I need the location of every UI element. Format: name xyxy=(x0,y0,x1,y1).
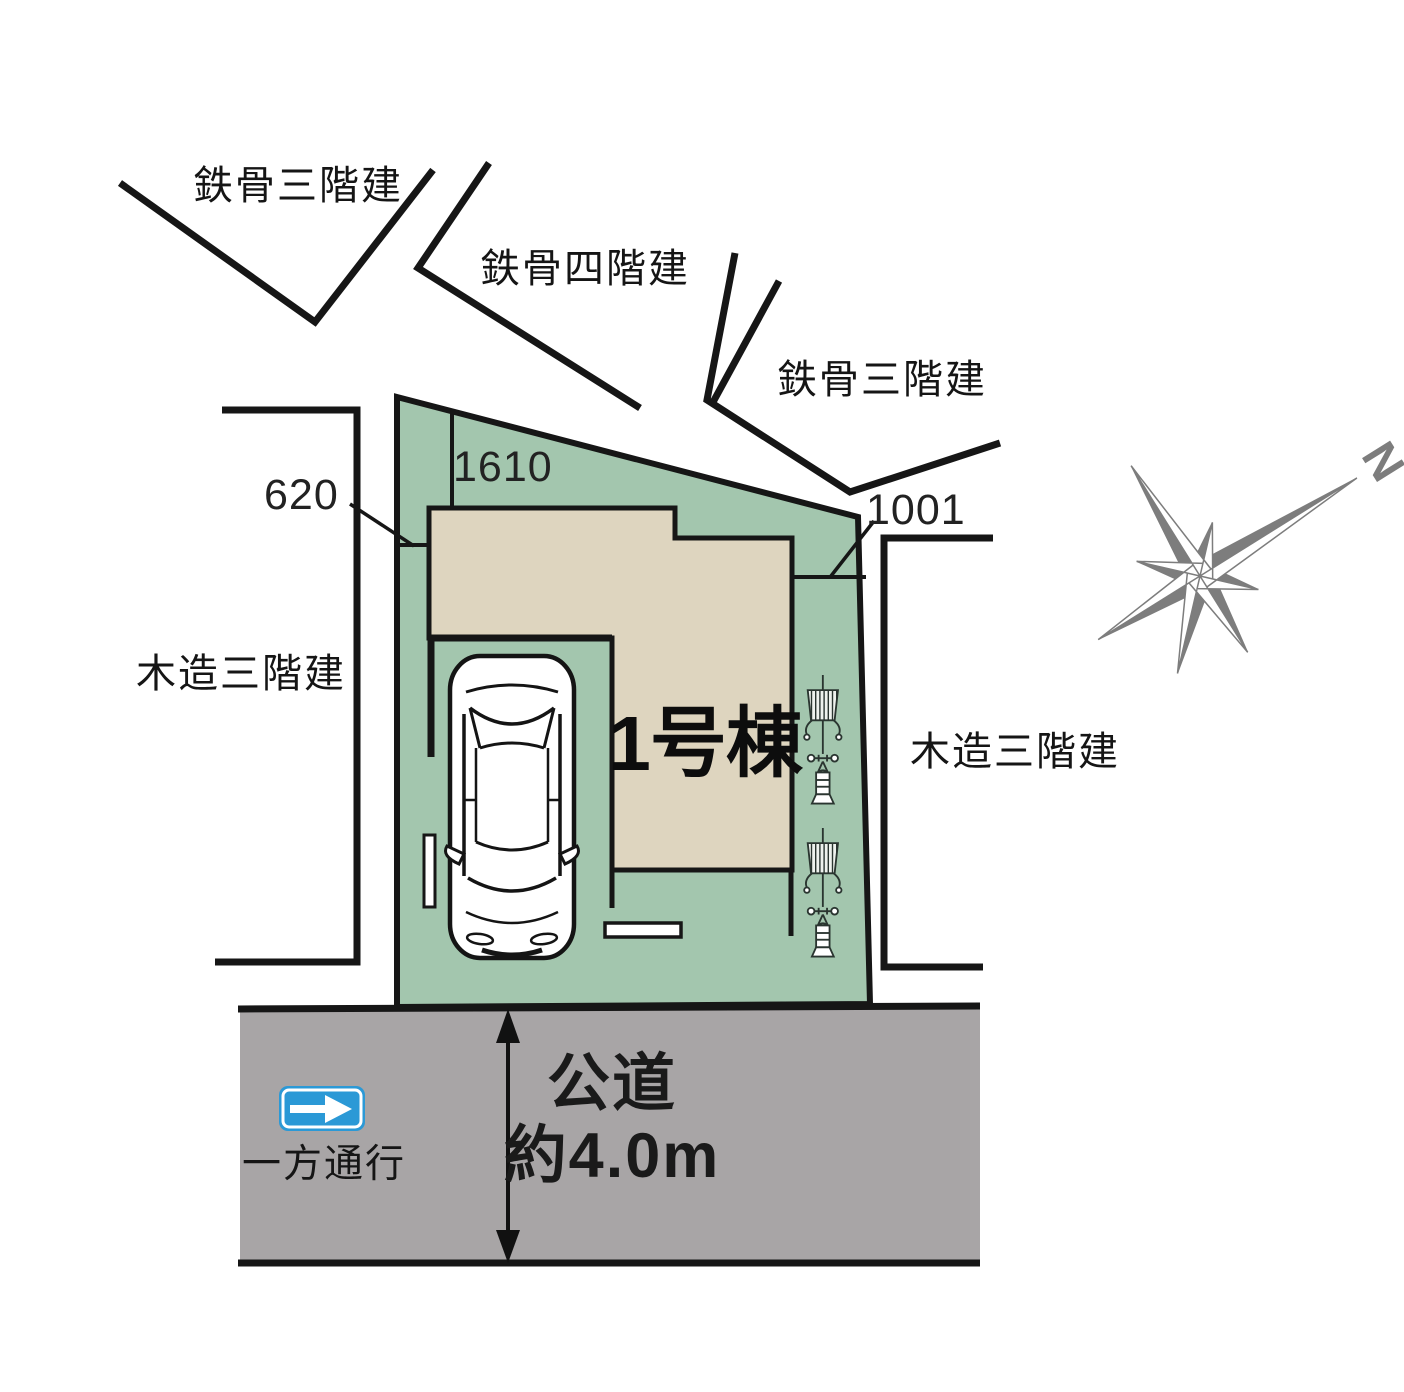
neighbor-label-right: 木造三階建 xyxy=(910,732,1120,772)
dimension-right-side: 1001 xyxy=(866,489,966,532)
neighbor-label-left: 木造三階建 xyxy=(136,654,346,694)
compass-north-label: N xyxy=(1351,433,1404,490)
neighbor-label-top-middle: 鉄骨四階建 xyxy=(480,249,690,289)
dimension-left-side: 620 xyxy=(264,474,339,517)
building-unit-label: 1号棟 xyxy=(608,706,802,783)
road-width-label: 約4.0m xyxy=(452,1125,772,1188)
site-plan-canvas: N 鉄骨三階建 鉄骨四階建 鉄骨三階建 木造三階建 木造三階建 1610 620… xyxy=(0,0,1404,1392)
one-way-label: 一方通行 xyxy=(242,1145,406,1184)
neighbor-label-top-left: 鉄骨三階建 xyxy=(193,166,403,206)
road-type-label: 公道 xyxy=(452,1053,772,1116)
dimension-top-edge: 1610 xyxy=(453,446,553,489)
neighbor-label-top-right: 鉄骨三階建 xyxy=(777,360,987,400)
one-way-sign-icon xyxy=(279,1086,365,1131)
compass-rose-icon: N xyxy=(1029,338,1404,716)
car-top-view-icon xyxy=(446,656,579,958)
